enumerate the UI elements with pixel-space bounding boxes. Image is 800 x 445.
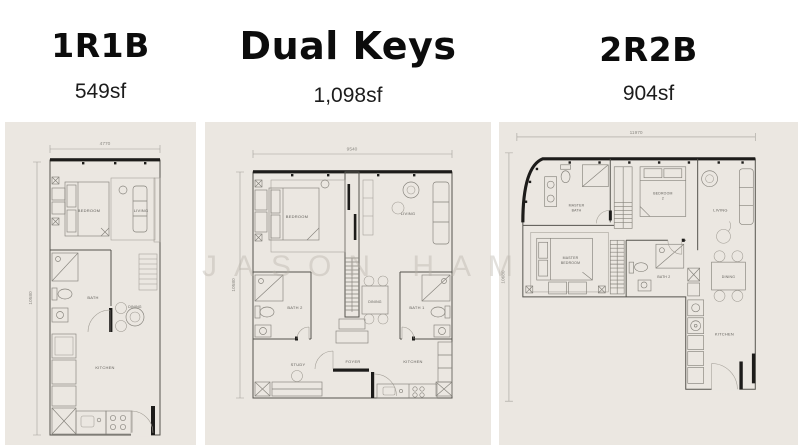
shower-icon	[52, 253, 78, 281]
sink-icon	[52, 308, 68, 322]
shower-icon	[582, 165, 608, 187]
room-label-foyer: FOYER	[345, 359, 360, 364]
window-mullions	[525, 161, 744, 203]
toilet-icon	[629, 262, 647, 273]
unit-area-dual-keys: 1,098sf	[205, 84, 491, 108]
room-label-dining: DINING	[368, 300, 382, 304]
room-label-living: LIVING	[134, 208, 149, 213]
room-label-living: LIVING	[401, 211, 416, 216]
sink-icon	[255, 325, 271, 337]
living-furniture	[702, 169, 754, 244]
outer-wall	[523, 159, 755, 389]
dining-furniture	[116, 254, 158, 332]
kitchen-sink-icon	[76, 411, 106, 434]
entrance-door	[712, 354, 756, 391]
wardrobe-icon	[614, 167, 632, 229]
room-label-dining: DINING	[128, 305, 142, 309]
door-arc	[668, 240, 682, 254]
stove-icon	[688, 318, 704, 334]
stairs-icon	[345, 258, 359, 312]
window-wall	[523, 159, 755, 223]
toilet-icon	[255, 306, 274, 318]
room-label-kitchen: KITCHEN	[95, 365, 114, 370]
room-label-bedroom2-1: BEDROOM	[653, 192, 672, 196]
kitchen-furniture	[52, 334, 132, 434]
window-wall	[253, 170, 452, 176]
floorplan-dual-keys: 9540 10580 BEDROOM	[205, 122, 491, 445]
shower-icon	[422, 275, 450, 301]
wardrobe-icon-2	[610, 240, 624, 294]
room-label-bath2: BATH 2	[287, 305, 303, 310]
unit-title-2r2b: 2R2B	[499, 30, 798, 69]
kitchen-sink-icon	[688, 300, 704, 316]
room-label-master-bedroom-1: MASTER	[563, 256, 579, 260]
window-wall	[50, 158, 160, 164]
floorplan-1r1b: 4770 10580 BEDROOM LIVING	[5, 122, 196, 445]
room-label-bedroom: BEDROOM	[78, 208, 100, 213]
dim-height-label: 10580	[28, 291, 34, 305]
room-label-study: STUDY	[291, 362, 306, 367]
room-label-kitchen: KITCHEN	[403, 359, 422, 364]
study-furniture	[255, 371, 322, 397]
door-arc	[88, 310, 110, 332]
dim-width-label: 11970	[630, 130, 643, 136]
kitchen-furniture	[377, 342, 452, 398]
floorplan-panel-1r1b: 4770 10580 BEDROOM LIVING	[5, 122, 196, 445]
toilet-icon	[561, 165, 571, 183]
toilet-icon	[52, 288, 72, 300]
room-label-bath: BATH	[87, 295, 98, 300]
stove-icon	[106, 411, 132, 434]
vanity-sink-icon	[545, 177, 557, 207]
room-label-bedroom: BEDROOM	[286, 214, 308, 219]
sink-icon	[434, 325, 450, 337]
sofa-icon	[433, 182, 449, 244]
room-label-bath2: BATH 2	[657, 275, 670, 279]
door-arc	[596, 210, 609, 223]
bath2-fixtures	[629, 239, 685, 291]
dim-width-label: 4770	[100, 141, 111, 147]
room-label-dining: DINING	[722, 275, 735, 279]
floorplan-panel-dual-keys: 9540 10580 BEDROOM	[205, 122, 491, 445]
dim-width-label: 9540	[347, 147, 358, 153]
dim-height-label: 10580	[231, 278, 237, 292]
hall-cabinet-icon	[688, 268, 700, 296]
unit-area-2r2b: 904sf	[499, 82, 798, 106]
dimension-lines: 4770 10580	[28, 141, 160, 435]
unit-title-dual-keys: Dual Keys	[205, 24, 491, 68]
dim-height-label: 10680	[500, 270, 506, 284]
floorplan-panel-2r2b: 11970 10680 MASTER BATH	[499, 122, 798, 445]
unit-title-1r1b: 1R1B	[5, 26, 196, 65]
shower-icon	[255, 275, 283, 301]
master-bath-fixtures	[545, 165, 612, 224]
kitchen-furniture	[688, 300, 704, 383]
shelf-icon	[139, 254, 157, 290]
toilet-icon	[431, 306, 450, 318]
room-label-master-bedroom-2: BEDROOM	[561, 261, 580, 265]
floorplan-2r2b: 11970 10680 MASTER BATH	[499, 122, 798, 445]
door-arc	[297, 327, 309, 339]
sink-icon	[638, 280, 651, 291]
room-label-master-bath-2: BATH	[572, 208, 582, 212]
entrance-door	[131, 406, 155, 437]
sofa-icon	[739, 169, 753, 225]
room-label-master-bath-1: MASTER	[569, 204, 585, 208]
room-label-bedroom2-2: 2	[662, 197, 664, 201]
bath1-walls	[400, 272, 452, 339]
unit-area-1r1b: 549sf	[5, 80, 196, 104]
bath-fixtures	[52, 253, 112, 332]
room-label-living: LIVING	[713, 207, 728, 212]
room-label-kitchen: KITCHEN	[715, 332, 734, 337]
room-label-bath1: BATH 1	[409, 305, 425, 310]
bath-walls	[50, 250, 111, 306]
